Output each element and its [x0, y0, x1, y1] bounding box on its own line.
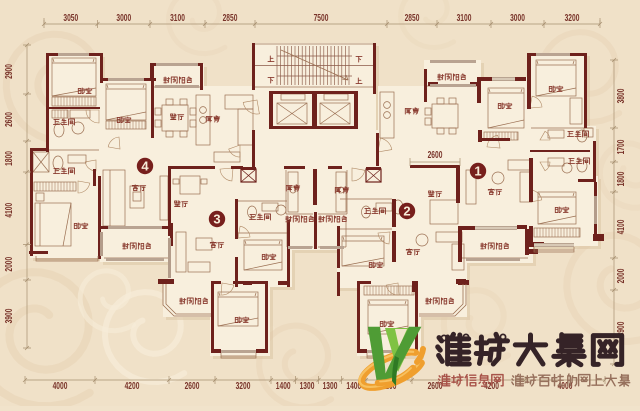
- svg-text:3000: 3000: [510, 13, 525, 24]
- svg-text:4000: 4000: [53, 381, 68, 392]
- svg-text:4100: 4100: [616, 219, 627, 234]
- svg-text:3100: 3100: [457, 13, 472, 24]
- svg-text:3800: 3800: [616, 88, 627, 103]
- svg-text:2900: 2900: [4, 64, 15, 79]
- svg-text:3900: 3900: [4, 308, 15, 323]
- svg-text:2600: 2600: [428, 381, 443, 392]
- svg-text:1: 1: [474, 164, 481, 179]
- svg-text:2850: 2850: [223, 13, 238, 24]
- svg-text:1800: 1800: [616, 171, 627, 186]
- svg-text:2000: 2000: [4, 257, 15, 272]
- svg-text:2000: 2000: [616, 268, 627, 283]
- svg-text:4100: 4100: [4, 203, 15, 218]
- svg-text:1700: 1700: [616, 139, 627, 154]
- svg-text:7500: 7500: [314, 13, 329, 24]
- svg-text:3100: 3100: [170, 13, 185, 24]
- svg-text:3200: 3200: [565, 13, 580, 24]
- svg-text:1300: 1300: [323, 381, 338, 392]
- svg-text:V: V: [361, 310, 422, 401]
- svg-text:1800: 1800: [4, 151, 15, 166]
- svg-text:2850: 2850: [405, 13, 420, 24]
- svg-text:3200: 3200: [236, 381, 251, 392]
- svg-text:2600: 2600: [185, 381, 200, 392]
- svg-text:1300: 1300: [300, 381, 315, 392]
- svg-text:2600: 2600: [428, 150, 443, 161]
- svg-text:4: 4: [141, 159, 149, 174]
- svg-text:3000: 3000: [116, 13, 131, 24]
- svg-text:4200: 4200: [125, 381, 140, 392]
- svg-text:2: 2: [403, 204, 410, 219]
- svg-text:3050: 3050: [63, 13, 78, 24]
- svg-text:1400: 1400: [276, 381, 291, 392]
- svg-text:2600: 2600: [4, 112, 15, 127]
- svg-text:3: 3: [213, 212, 220, 227]
